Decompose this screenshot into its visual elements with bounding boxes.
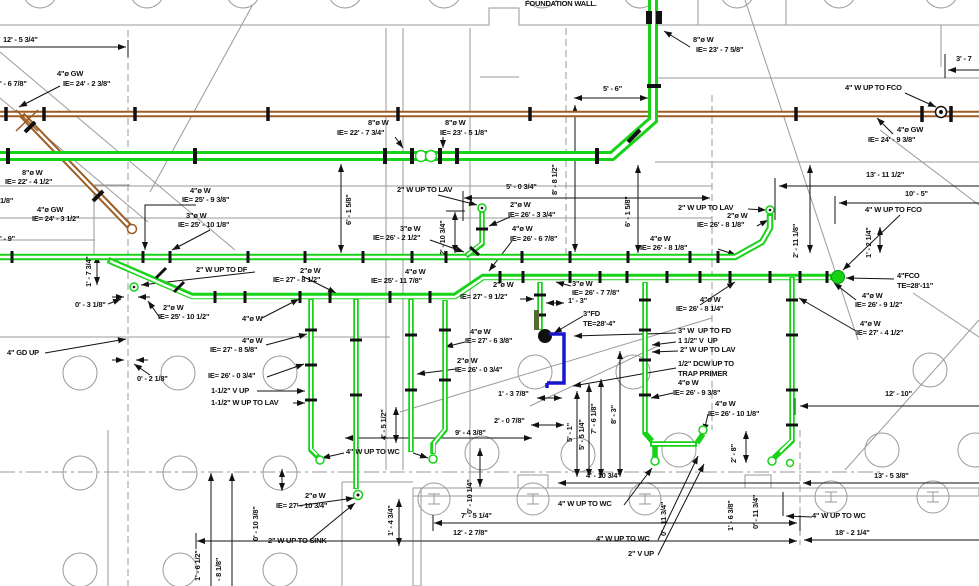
foundation-wall-hatched [413, 488, 979, 496]
annotation-label: IE= 24' - 3 1/2" [32, 215, 79, 224]
annotation-label: ' - 6 7/8" [0, 80, 27, 89]
annotation-label: 4"ø GW [897, 126, 923, 135]
annotation-label: IE= 27' - 8 5/8" [210, 346, 257, 355]
annotation-label: 4" W UP TO WC [346, 448, 400, 457]
annotation-label: 0' - 10 1/4" [466, 479, 475, 514]
annotation-label: IE= 24' - 2 3/8" [63, 80, 110, 89]
annotation-label: 1' - 6 1/2" [194, 550, 203, 581]
annotation-label: 8' - 8 1/2" [551, 164, 560, 195]
wc-lav-risers [305, 277, 798, 500]
grease-waste-pipe-gw [0, 106, 979, 234]
annotation-label: 5' - 6" [603, 85, 622, 94]
annotation-label: 2' - 11 1/8" [792, 224, 801, 258]
annotation-label: IE= 26' - 6 7/8" [510, 235, 557, 244]
annotation-label: ' - 9" [0, 235, 15, 244]
annotation-label: 2' - 8" [730, 444, 739, 463]
annotation-label: 5' - 1" [566, 423, 575, 442]
annotation-label: 8' - 3" [610, 405, 619, 424]
annotation-label: IE= 27' - 6 3/8" [465, 337, 512, 346]
annotation-label: 0' - 11 3/4" [660, 502, 669, 536]
annotation-label: 4" W UP TO FCO [865, 206, 922, 215]
annotation-label: 8"ø W [693, 36, 713, 45]
fd-branch-pipe [534, 310, 539, 330]
annotation-label: 13' - 5 3/8" [874, 472, 909, 481]
annotation-label: IE= 26' - 8 1/8" [640, 244, 687, 253]
annotation-label: 2" W UP TO LAV [680, 346, 735, 355]
annotation-label: 5' - 0 3/4" [506, 183, 537, 192]
annotation-label: 0' - 10 3/8" [252, 506, 261, 541]
cleanout-fco-symbol [832, 271, 845, 284]
annotation-label: 7' - 6 1/8" [590, 403, 599, 434]
annotation-label: 1' - 6 3/8" [727, 500, 736, 531]
annotation-label: IE= 27' - 9 1/2" [460, 293, 507, 302]
annotation-label: 0' - 11 3/4" [752, 495, 761, 529]
annotation-label: IE= 22' - 4 1/2" [5, 178, 52, 187]
annotation-label: 1' - 2 1/4" [865, 227, 874, 258]
annotation-label: 3"FD [583, 310, 600, 319]
annotation-label: 12' - 2 7/8" [453, 529, 488, 538]
annotation-label: IE= 25' - 10 1/8" [178, 221, 229, 230]
annotation-label: 1/2" DCW UP TO [678, 360, 734, 369]
annotation-label: IE= 27' - 8 1/2" [273, 276, 320, 285]
annotation-label: TE=28'-11" [897, 282, 933, 291]
annotation-label: 4' - 10 3/4" [586, 472, 621, 481]
annotation-label: IE= 26' - 8 1/8" [697, 221, 744, 230]
annotation-label: 2"ø W [305, 492, 325, 501]
annotation-label: 4" W UP TO WC [596, 535, 650, 544]
annotation-label: IE= 27' - 10 3/4" [276, 502, 327, 511]
annotation-label: IE= 26' - 0 3/4" [208, 372, 255, 381]
annotation-label: 1-1/2" V UP [211, 387, 249, 396]
annotation-label: 4" GD UP [7, 349, 39, 358]
annotation-label: IE= 27' - 4 1/2" [856, 329, 903, 338]
annotation-label: 4" W UP TO FCO [845, 84, 902, 93]
annotation-label: 6' - 1 5/8" [624, 196, 633, 227]
annotation-label: 4"ø W [715, 400, 735, 409]
annotation-label: 13' - 11 1/2" [866, 171, 904, 180]
annotation-label: IE= 26' - 8 1/4" [676, 305, 723, 314]
annotation-label: 4" W UP TO WC [812, 512, 866, 521]
annotation-label: IE= 26' - 0 3/4" [455, 366, 502, 375]
annotation-label: 2" V UP [628, 550, 654, 559]
column-footings-top [23, 0, 958, 8]
annotation-label: 18' - 2 1/4" [835, 529, 870, 538]
annotation-label: 2' - 10 3/4" [439, 220, 448, 255]
annotation-label: 4"ø W [242, 315, 262, 324]
annotation-label: IE= 25' - 9 3/8" [182, 196, 229, 205]
annotation-label: 4"ø W [512, 225, 532, 234]
annotation-label: 10' - 5" [905, 190, 928, 199]
annotation-label: 1/8" [0, 197, 13, 206]
annotation-label: 8"ø W [368, 119, 388, 128]
annotation-label: IE= 26' - 9 1/2" [855, 301, 902, 310]
annotation-label: 3" W UP TO FD [678, 327, 731, 336]
annotation-label: IE= 23' - 5 1/8" [440, 129, 487, 138]
annotation-label: IE= 25' - 10 1/2" [158, 313, 209, 322]
plumbing-plan-canvas: 12' - 5 3/4"' - 6 7/8"4"ø GWIE= 24' - 2 … [0, 0, 979, 586]
foundation-wall-note: FOUNDATION WALL. [525, 0, 597, 9]
annotation-label: 2" W UP TO LAV [678, 204, 733, 213]
annotation-label: IE= 22' - 7 3/4" [337, 129, 384, 138]
annotation-label: 4"ø W [678, 379, 698, 388]
annotation-label: 2" W UP TO LAV [397, 186, 452, 195]
annotation-label: IE= 26' - 3 3/4" [508, 211, 555, 220]
annotation-label: 8"ø W [445, 119, 465, 128]
floor-drain-symbol [538, 329, 552, 343]
annotation-label: 2"ø W [493, 281, 513, 290]
annotation-label: - 8 1/8" [215, 558, 224, 581]
dimension-lines [0, 40, 979, 586]
annotation-label: 4"FCO [897, 272, 920, 281]
annotation-label: 9' - 4 3/8" [455, 429, 486, 438]
annotation-label: IE= 26' - 9 3/8" [673, 389, 720, 398]
annotation-label: 1' - 4 3/4" [387, 505, 396, 536]
annotation-label: IE= 25' - 11 7/8" [371, 277, 422, 286]
pipe-end-cap [128, 225, 137, 234]
annotation-label: 2" W UP TO DF [196, 266, 247, 275]
annotation-label: IE= 24' - 9 3/8" [868, 136, 915, 145]
annotation-label: 12' - 10" [885, 390, 912, 399]
annotation-label: 4' - 5 1/2" [380, 409, 389, 440]
annotation-label: 4"ø GW [57, 70, 83, 79]
annotation-label: 2' - 0 7/8" [494, 417, 525, 426]
annotation-label: 5' - 5 1/4" [578, 419, 587, 450]
annotation-label: 4" W UP TO WC [558, 500, 612, 509]
annotation-label: 0' - 3 1/8" [75, 301, 106, 310]
annotation-label: TE=28'-4" [583, 320, 616, 329]
annotation-label: IE= 26' - 10 1/8" [708, 410, 759, 419]
annotation-label: 1' - 3 7/8" [498, 390, 529, 399]
annotation-label: 2"ø W [510, 201, 530, 210]
annotation-label: 0' - 2 1/8" [137, 375, 168, 384]
annotation-label: 1' - 3" [568, 297, 587, 306]
waste-pipe-w [0, 0, 845, 500]
annotation-label: 1' - 7 3/4" [85, 256, 94, 287]
annotation-label: 3' - 7 [956, 55, 972, 64]
annotation-label: IE= 26' - 2 1/2" [373, 234, 420, 243]
annotation-label: 1-1/2" W UP TO LAV [211, 399, 278, 408]
annotation-label: IE= 23' - 7 5/8" [696, 46, 743, 55]
annotation-label: 12' - 5 3/4" [3, 36, 38, 45]
annotation-label: 2" W UP TO SINK [268, 537, 327, 546]
annotation-label: 6' - 1 5/8" [345, 194, 354, 225]
